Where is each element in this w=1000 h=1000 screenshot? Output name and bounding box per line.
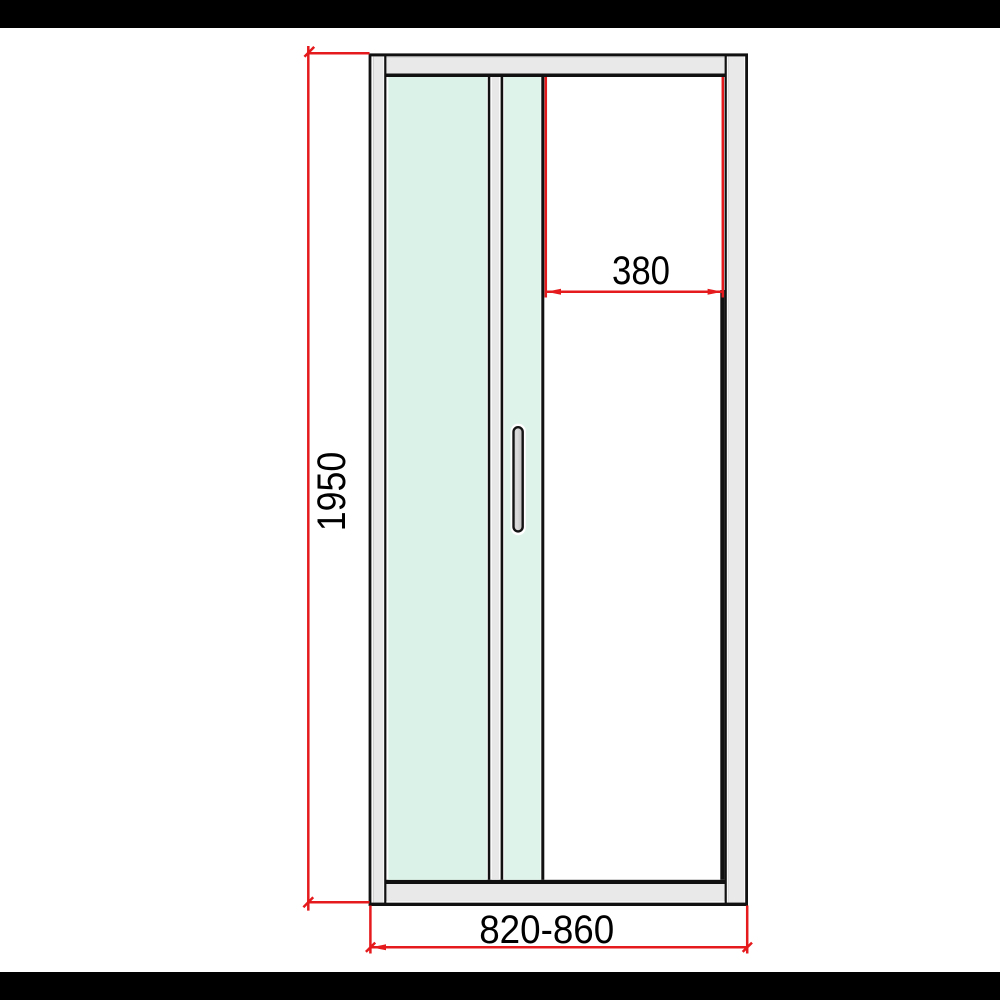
svg-text:1950: 1950	[310, 452, 354, 532]
svg-text:820-860: 820-860	[479, 908, 614, 952]
svg-text:380: 380	[612, 249, 670, 293]
